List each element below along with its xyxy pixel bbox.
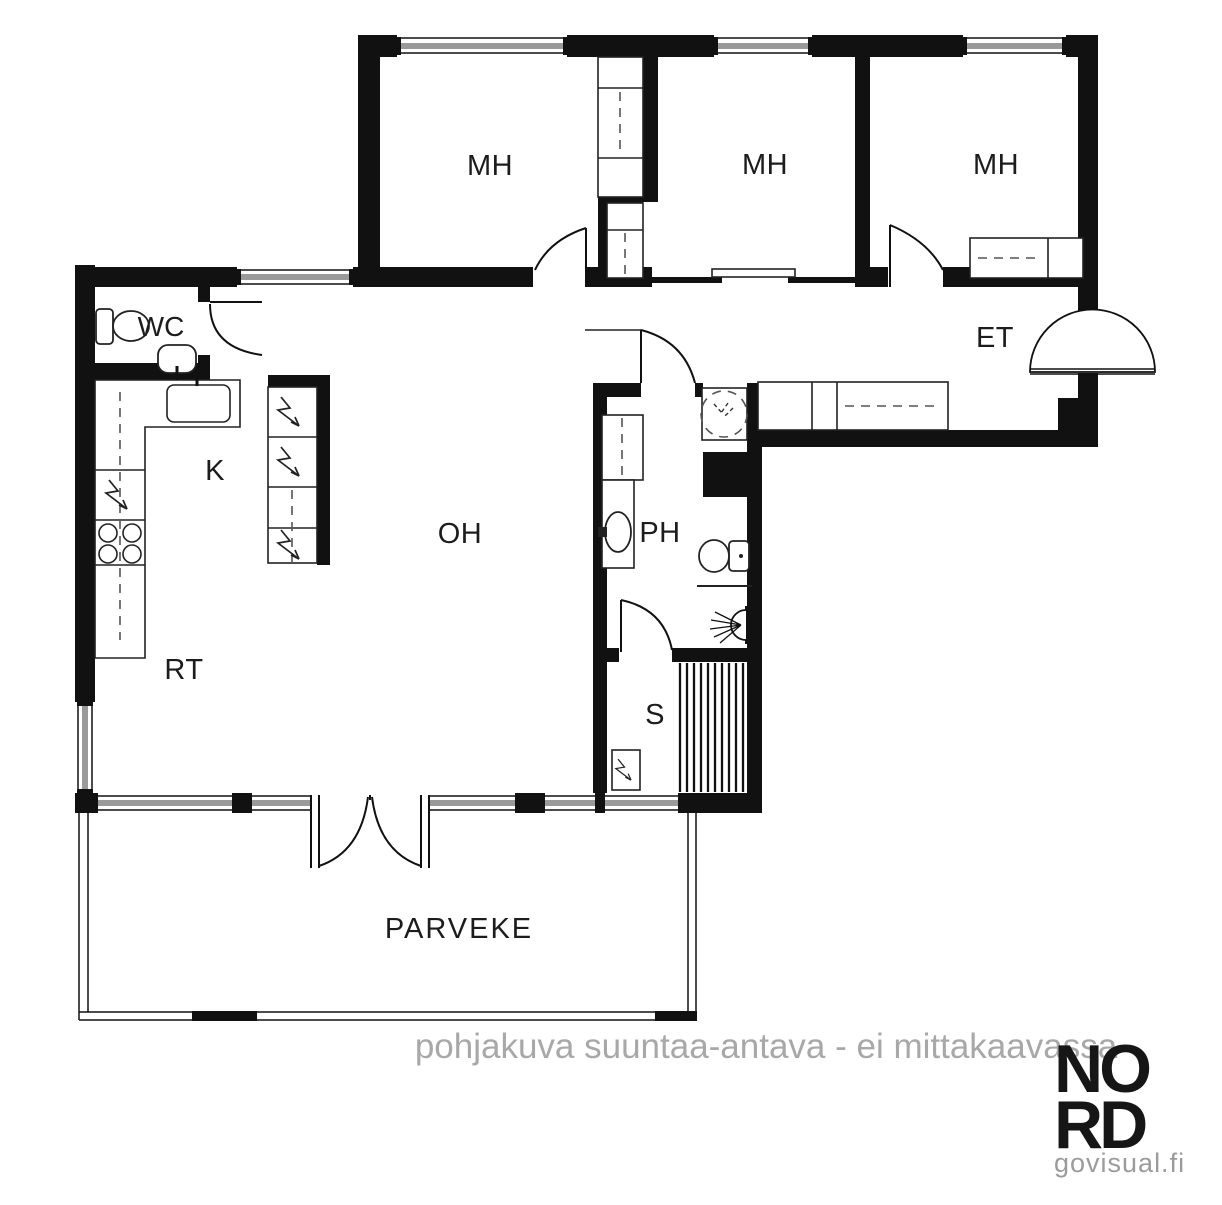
closet-mh1-upper — [598, 57, 643, 197]
label-rt: RT — [164, 654, 203, 686]
sauna-stove-icon — [612, 750, 640, 790]
window-west — [75, 702, 95, 793]
closets — [598, 57, 1083, 430]
balcony-rail-post — [192, 1011, 257, 1021]
balcony-rail-corner — [655, 1011, 697, 1021]
closet-mh3 — [970, 238, 1083, 278]
window-oh-1 — [430, 793, 515, 813]
ph-toilet-icon — [699, 540, 749, 572]
label-mh3: MH — [973, 149, 1019, 181]
window-hall — [237, 267, 353, 287]
sliding-door-mh2 — [712, 269, 795, 277]
door-wc — [210, 302, 262, 355]
washing-machine-icon — [701, 388, 747, 440]
brand-site-text: govisual.fi — [1054, 1148, 1185, 1178]
label-k: K — [205, 455, 225, 487]
door-ph — [585, 330, 695, 383]
sauna — [612, 663, 743, 792]
window-oh-2 — [545, 793, 595, 813]
door-mh3 — [890, 225, 943, 287]
door-entrance — [1030, 310, 1155, 375]
door-balcony — [311, 795, 429, 868]
ph-sink-icon — [598, 480, 634, 568]
label-wc: WC — [138, 311, 185, 342]
label-mh2: MH — [742, 149, 788, 181]
floor-plan: MH MH MH WC ET K OH PH RT S PARVEKE pohj… — [0, 0, 1222, 1200]
label-s: S — [645, 699, 665, 731]
door-sauna — [621, 600, 672, 652]
kitchen — [95, 370, 317, 658]
label-mh1: MH — [467, 150, 513, 182]
closet-mh2-lower — [607, 203, 643, 278]
window-sauna — [605, 793, 678, 813]
kitchen-island — [268, 387, 317, 563]
label-et: ET — [976, 322, 1014, 354]
kitchen-sink-icon — [167, 385, 230, 422]
sauna-benches — [680, 663, 743, 792]
label-ph: PH — [639, 517, 680, 549]
label-oh: OH — [438, 518, 483, 550]
window-mh1 — [397, 35, 567, 57]
disclaimer-text: pohjakuva suuntaa-antava - ei mittakaava… — [415, 1027, 1118, 1066]
window-rt-2 — [252, 793, 310, 813]
window-mh3 — [963, 35, 1066, 57]
door-mh1 — [535, 228, 586, 287]
window-rt-1 — [98, 793, 232, 813]
ph-cabinet — [602, 415, 643, 480]
shower-icon — [710, 606, 746, 644]
label-parveke: PARVEKE — [385, 913, 533, 945]
window-mh2 — [714, 35, 812, 57]
closet-et-row — [758, 382, 948, 430]
nord-logo: NO RD govisual.fi — [1054, 1031, 1185, 1178]
